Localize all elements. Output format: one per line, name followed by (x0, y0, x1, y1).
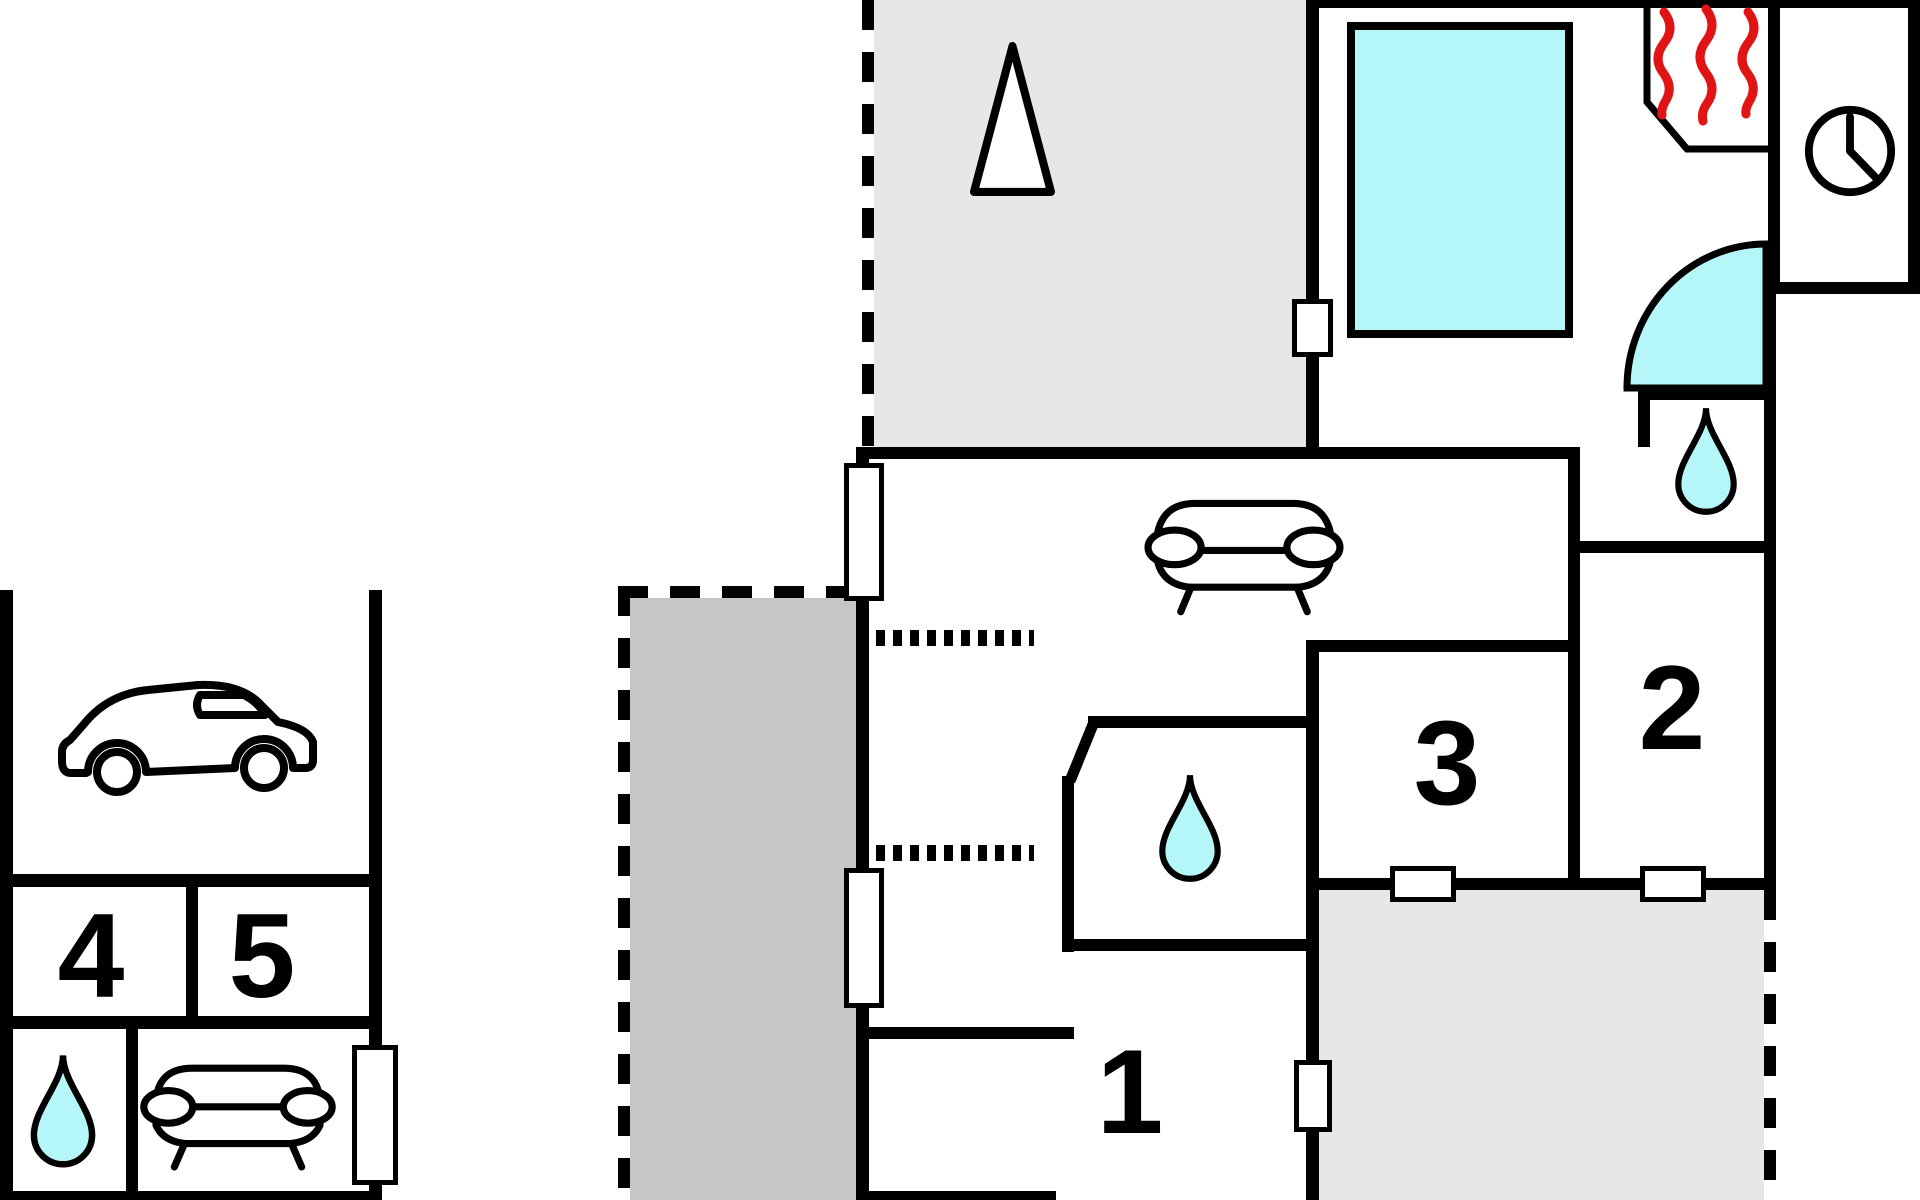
water-drop-icon (24, 1050, 102, 1174)
room-3-left-wall (1306, 640, 1319, 1062)
rooms-2-3-divider-wall (1568, 447, 1580, 890)
bottom-terrace-left-window (1294, 1060, 1332, 1132)
house-left-window-lower (844, 868, 884, 1008)
bathroom-left-wall (1062, 776, 1074, 952)
room-5-label: 5 (229, 896, 296, 1016)
clock-room-bottom-wall (1768, 282, 1920, 294)
living-room-top-wall (856, 447, 1580, 459)
wc-left-wall (1638, 395, 1650, 447)
sofa-top-icon (1146, 488, 1342, 618)
bathroom-bottom-wall (1062, 939, 1318, 951)
sofa-front-icon (143, 1058, 333, 1170)
pool-room-left-wall-lower (1306, 356, 1319, 454)
house-right-wall (1764, 388, 1776, 890)
threshold-dots-icon-upper (876, 630, 1034, 646)
room-2-label: 2 (1639, 648, 1706, 768)
clock-icon (1801, 102, 1899, 200)
pool (1347, 22, 1573, 338)
middle-terrace-dashed-border-left (618, 586, 630, 1200)
terrace-left-wall-lower (1306, 1130, 1319, 1200)
top-terrace-dashed-border (862, 0, 874, 447)
pool-room-left-wall-upper (1306, 0, 1319, 300)
bottom-terrace-dashed-border-right (1764, 890, 1776, 1200)
middle-terrace-dashed-border-top (618, 586, 858, 598)
bottom-terrace (1318, 890, 1764, 1200)
water-drop-icon-wc (1670, 403, 1742, 521)
room-1-bottom-edge-wall (856, 1191, 1056, 1200)
room-2-top-wall (1568, 541, 1776, 553)
water-drop-icon-bathroom (1154, 770, 1226, 888)
annex-lower-divider-wall (126, 1022, 138, 1200)
bathroom-corner-diagonal-wall (1056, 714, 1100, 788)
rooms-4-5-divider-wall (186, 880, 198, 1025)
hall-bottom-wall (856, 1027, 1074, 1039)
room-3-top-wall (1306, 640, 1580, 652)
door-swing-icon (1626, 243, 1767, 389)
door-leaf (1764, 243, 1776, 389)
room-3-bottom-window (1390, 866, 1456, 902)
bathroom-top-wall (1088, 716, 1308, 728)
top-terrace (874, 0, 1306, 447)
room-4-label: 4 (58, 896, 125, 1016)
floor-plan: 4 5 (0, 0, 1920, 1200)
carport-left-wall (0, 590, 13, 1200)
room-1-label: 1 (1097, 1032, 1164, 1152)
tree-icon (958, 38, 1068, 200)
clock-room-right-wall (1908, 0, 1920, 294)
top-edge-wall (1306, 0, 1920, 8)
annex-bottom-edge-wall (0, 1191, 382, 1200)
pool-room-left-window (1292, 299, 1333, 357)
annex-right-window (352, 1045, 398, 1185)
room-2-bottom-window (1640, 866, 1706, 902)
room-3-label: 3 (1414, 703, 1481, 823)
threshold-dots-icon-lower (876, 845, 1034, 861)
heat-waves-icon (1630, 0, 1780, 160)
house-left-window-upper (844, 463, 884, 601)
middle-terrace (630, 598, 856, 1200)
car-icon (48, 655, 333, 800)
